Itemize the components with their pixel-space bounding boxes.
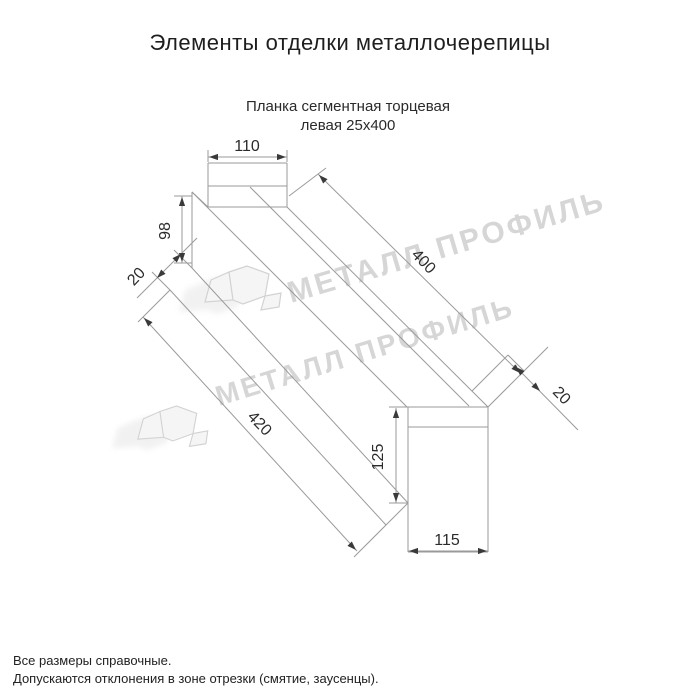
dim-length-bottom: 420 [244,408,275,439]
ext-line [524,347,548,371]
part-edge [488,371,524,407]
part-edge [472,355,508,391]
dim-left-height: 98 [157,222,174,240]
arrowhead-icon [277,154,286,160]
ext-line [138,290,170,322]
arrowhead-icon [179,197,185,206]
footnote-2: Допускаются отклонения в зоне отрезки (с… [13,670,613,688]
arrowhead-icon [393,409,399,418]
part-edge [170,290,386,525]
dim-top-width: 110 [234,138,260,155]
dim-left-hem: 20 [124,265,149,290]
drawing-page: Элементы отделки металлочерепицы Планка … [0,0,700,700]
watermark-text: МЕТАЛЛ ПРОФИЛЬ [212,291,518,412]
ext-line [289,168,326,196]
footnote-1: Все размеры справочные. [13,652,613,670]
arrowhead-icon [478,548,487,554]
technical-drawing: МЕТАЛЛ ПРОФИЛЬ МЕТАЛЛ ПРОФИЛЬ 110 98 20 … [0,0,700,700]
arrowhead-icon [209,154,218,160]
arrowhead-icon [409,548,418,554]
dim-end-height: 125 [370,444,387,471]
watermark-text: МЕТАЛЛ ПРОФИЛЬ [284,184,610,309]
part-edge [386,503,408,525]
ext-line [354,525,386,557]
arrowhead-icon [393,493,399,502]
dim-end-width: 115 [434,532,460,549]
footnotes: Все размеры справочные. Допускаются откл… [13,652,613,687]
